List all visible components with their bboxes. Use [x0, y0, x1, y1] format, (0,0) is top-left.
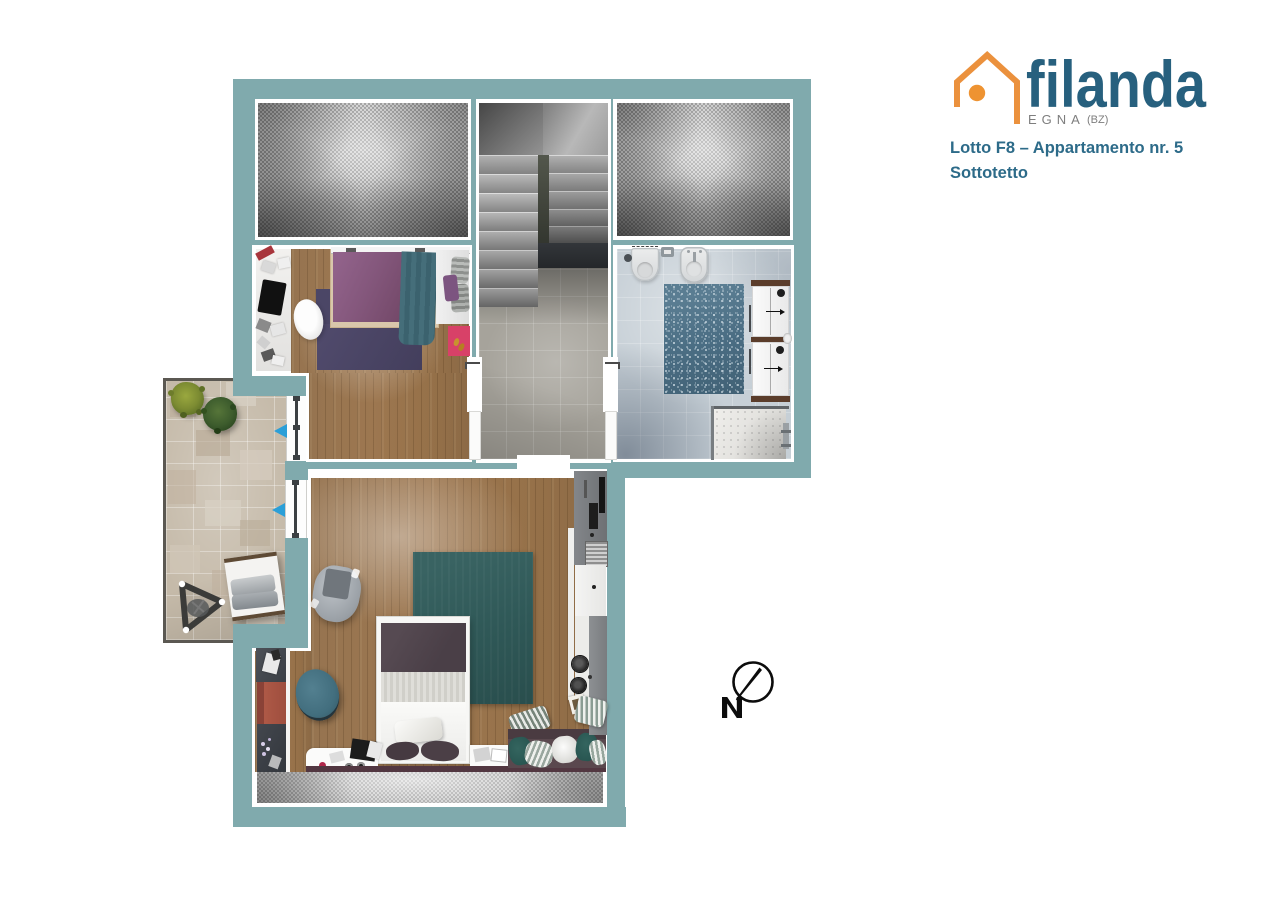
svg-text:filanda: filanda — [1026, 48, 1207, 118]
